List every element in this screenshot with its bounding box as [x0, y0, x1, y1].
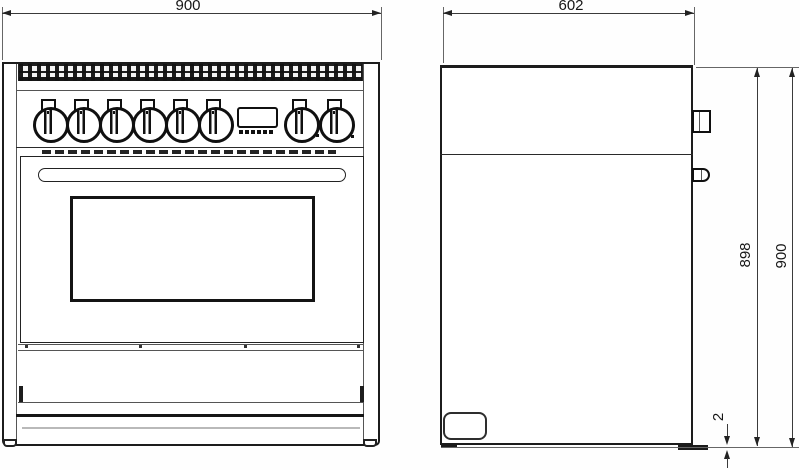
dim-label-base-gap: 2 — [712, 405, 726, 429]
dim-arrow-down — [724, 436, 730, 445]
dim-base-gap: 2 — [0, 0, 800, 470]
dimension-drawing: 900 602 898 900 2 — [0, 0, 800, 470]
dimension-line-lower — [727, 458, 728, 468]
